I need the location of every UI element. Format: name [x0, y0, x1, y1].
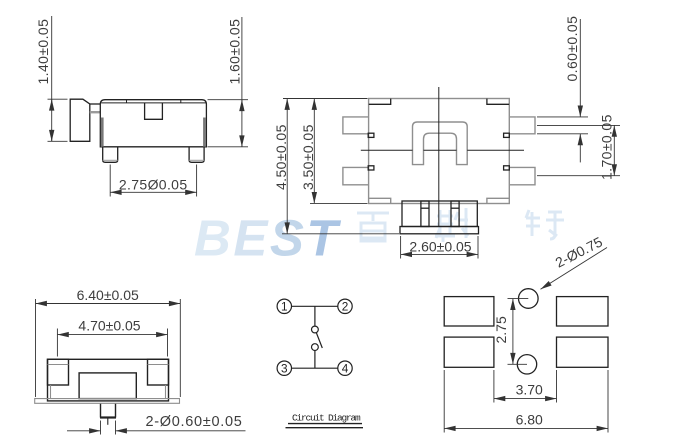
svg-text:1.70±0.05: 1.70±0.05 [598, 114, 614, 180]
svg-text:0.60±0.05: 0.60±0.05 [564, 16, 580, 82]
svg-text:2: 2 [342, 299, 349, 313]
svg-text:3.50±0.05: 3.50±0.05 [300, 124, 316, 190]
svg-text:4.70±0.05: 4.70±0.05 [78, 318, 140, 334]
svg-text:3: 3 [281, 361, 288, 375]
svg-text:6.80: 6.80 [516, 412, 543, 428]
svg-text:4.50±0.05: 4.50±0.05 [273, 124, 289, 190]
svg-text:6.40±0.05: 6.40±0.05 [77, 287, 139, 303]
svg-text:2.75: 2.75 [493, 316, 509, 343]
svg-text:BEST: BEST [194, 210, 341, 267]
svg-text:2-Ø0.60±0.05: 2-Ø0.60±0.05 [146, 414, 243, 430]
svg-text:1: 1 [281, 299, 288, 313]
svg-text:1.60±0.05: 1.60±0.05 [226, 19, 242, 85]
svg-text:Circuit Diagram: Circuit Diagram [292, 413, 361, 424]
svg-text:3.70: 3.70 [516, 381, 543, 397]
svg-text:2.75Ø0.05: 2.75Ø0.05 [119, 177, 188, 193]
svg-text:1.40±0.05: 1.40±0.05 [35, 19, 51, 85]
svg-text:2.60±0.05: 2.60±0.05 [409, 239, 471, 255]
svg-text:4: 4 [342, 361, 349, 375]
